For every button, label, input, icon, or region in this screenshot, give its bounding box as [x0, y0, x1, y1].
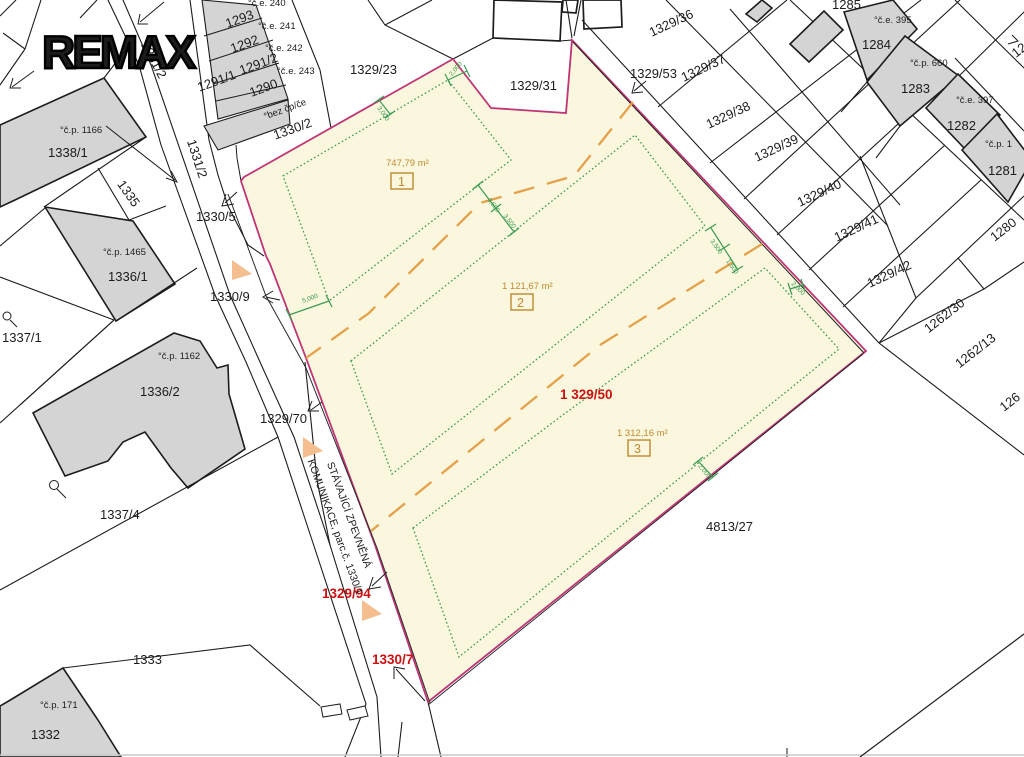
svg-text:1329/53: 1329/53 [630, 66, 677, 81]
svg-text:REMAX: REMAX [42, 26, 196, 78]
svg-text:°č.p. 171: °č.p. 171 [40, 700, 78, 711]
svg-text:°č.e. 395: °č.e. 395 [874, 15, 912, 26]
svg-text:°č.p. 1162: °č.p. 1162 [158, 351, 200, 362]
svg-text:°č.p. 1465: °č.p. 1465 [103, 247, 146, 258]
svg-text:4813/27: 4813/27 [706, 519, 753, 534]
svg-text:1329/70: 1329/70 [260, 411, 307, 426]
svg-text:1337/1: 1337/1 [2, 330, 42, 345]
svg-text:1330/5: 1330/5 [196, 209, 236, 224]
svg-text:°č.e. 241: °č.e. 241 [258, 21, 296, 32]
svg-text:°č.e. 240: °č.e. 240 [248, 0, 286, 9]
svg-text:3: 3 [634, 442, 641, 456]
svg-text:°č.e. 242: °č.e. 242 [265, 43, 303, 54]
svg-text:747,79 m²: 747,79 m² [386, 158, 429, 169]
svg-text:2: 2 [517, 296, 524, 310]
svg-text:°č.p. 660: °č.p. 660 [910, 58, 948, 69]
svg-text:°č.p. 1166: °č.p. 1166 [60, 125, 102, 136]
svg-text:1281: 1281 [988, 163, 1017, 178]
svg-text:°č.p. 1: °č.p. 1 [985, 139, 1012, 150]
svg-text:1282: 1282 [947, 118, 976, 133]
svg-text:1 329/50: 1 329/50 [560, 387, 613, 402]
svg-text:°č.e. 397: °č.e. 397 [956, 95, 994, 106]
svg-text:1329/31: 1329/31 [510, 78, 557, 93]
svg-text:1337/4: 1337/4 [100, 507, 140, 522]
svg-text:1: 1 [398, 175, 405, 189]
svg-text:1338/1: 1338/1 [48, 145, 88, 160]
svg-text:1332: 1332 [31, 727, 60, 742]
svg-text:1 121,67 m²: 1 121,67 m² [502, 281, 553, 292]
svg-text:1 312,16 m²: 1 312,16 m² [617, 428, 668, 439]
svg-text:1330/9: 1330/9 [210, 289, 250, 304]
svg-text:1336/1: 1336/1 [108, 269, 148, 284]
svg-text:°č.e. 243: °č.e. 243 [277, 66, 315, 77]
svg-text:1336/2: 1336/2 [140, 384, 180, 399]
svg-text:1333: 1333 [133, 652, 162, 667]
svg-text:1284: 1284 [862, 37, 891, 52]
svg-text:1285: 1285 [832, 0, 861, 12]
svg-text:1329/23: 1329/23 [350, 62, 397, 77]
svg-text:1283: 1283 [901, 81, 930, 96]
svg-text:1330/7: 1330/7 [372, 652, 413, 667]
